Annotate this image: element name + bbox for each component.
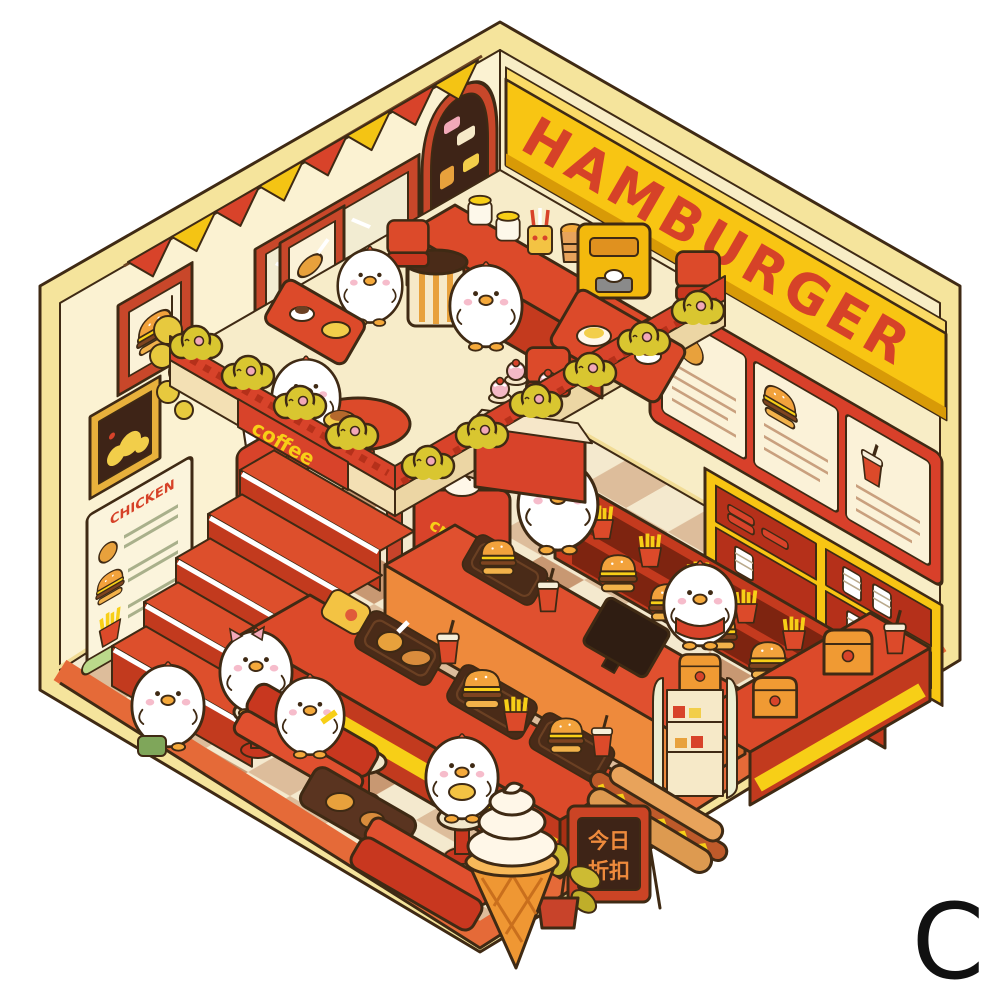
- isometric-hamburger-shop-illustration: CHICKEN: [0, 0, 1000, 1000]
- takeout-bag-counter: [680, 654, 721, 691]
- coffee-machine: [578, 224, 650, 298]
- discount-line-1: 今日: [588, 829, 630, 853]
- takeout-bag-1: [824, 630, 872, 674]
- variant-letter: C: [912, 881, 985, 1000]
- scene-canvas: CHICKEN: [0, 0, 1000, 1000]
- straw-cup: [528, 208, 552, 254]
- takeout-bag-2: [753, 678, 796, 718]
